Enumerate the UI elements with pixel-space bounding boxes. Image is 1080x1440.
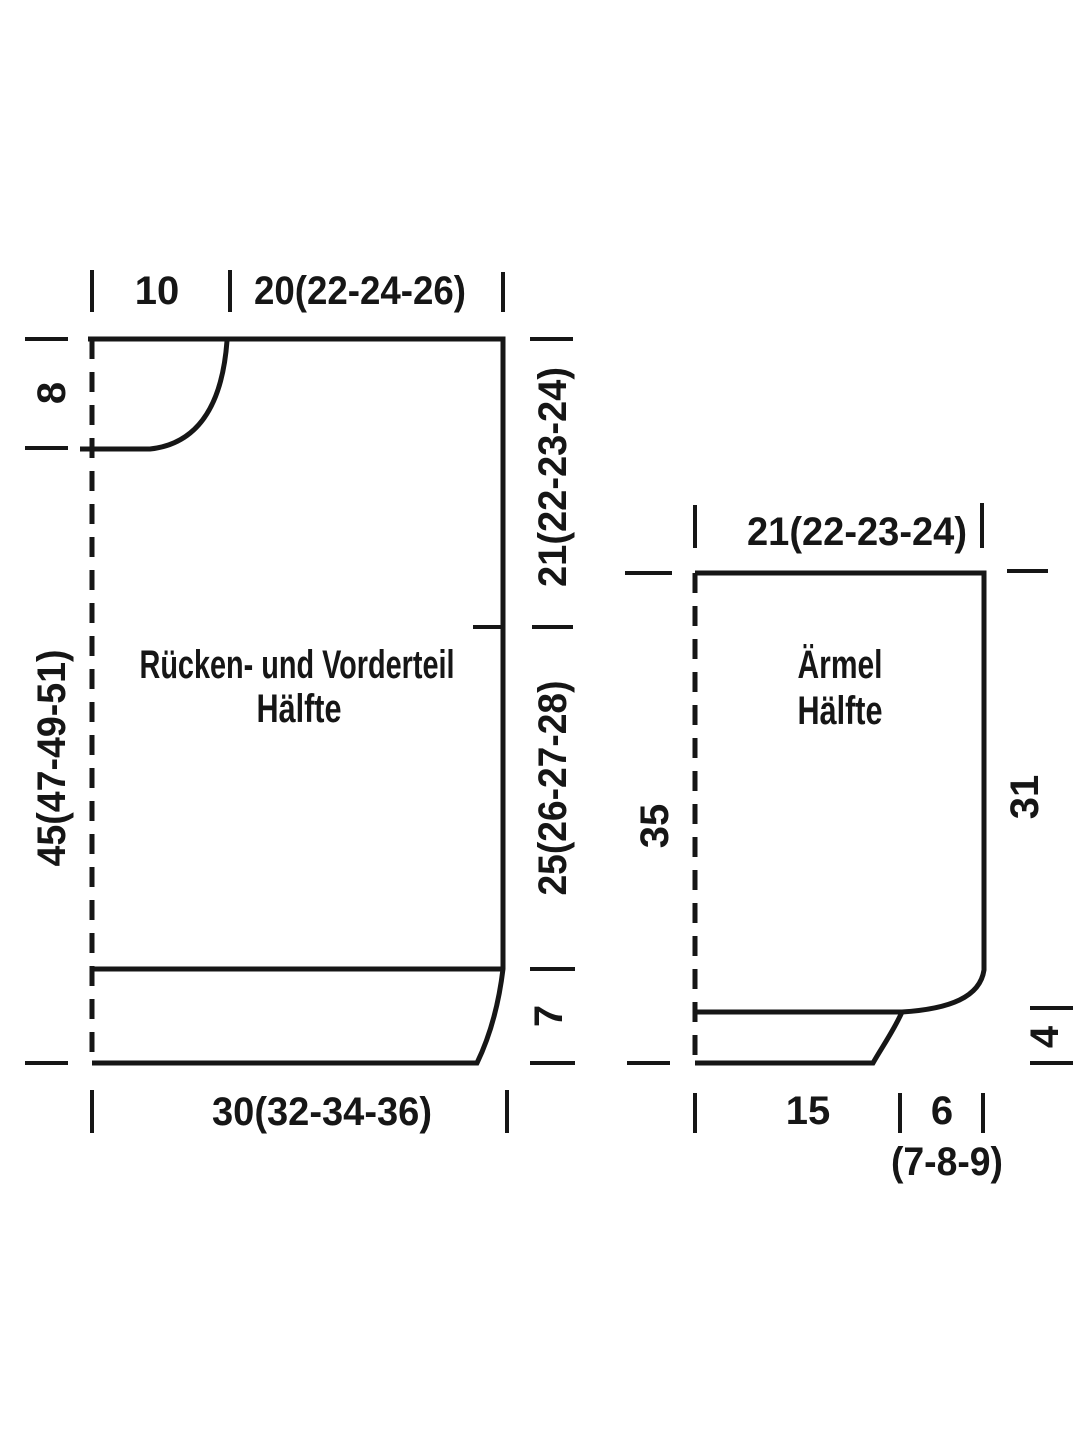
body-side-length-label: 25(26-27-28) (531, 681, 575, 896)
knitting-pattern-schematic: 10 20(22-24-26) 8 45(47-49-51) 21(22-23-… (0, 0, 1080, 1440)
body-neck-depth-label: 8 (30, 382, 74, 404)
sleeve-seam-length-label: 31 (1003, 775, 1047, 820)
body-shoulder-width-label: 10 (135, 269, 180, 313)
body-neck-width-label: 20(22-24-26) (254, 269, 466, 313)
sleeve-piece: 21(22-23-24) 35 31 4 15 6 (7-8-9) Ärmel … (625, 503, 1073, 1184)
body-ribbing-height-label: 7 (527, 1005, 571, 1027)
body-piece-title-line2: Hälfte (257, 687, 342, 731)
sleeve-total-length-label: 35 (633, 804, 677, 849)
body-piece-title-line1: Rücken- und Vorderteil (140, 643, 455, 687)
sleeve-top-width-label: 21(22-23-24) (747, 510, 967, 554)
body-armhole-length-label: 21(22-23-24) (531, 367, 575, 587)
body-piece: 10 20(22-24-26) 8 45(47-49-51) 21(22-23-… (25, 269, 575, 1134)
body-neckline-curve (80, 341, 227, 449)
sleeve-outline (695, 573, 984, 1012)
sleeve-cuff-height-label: 4 (1023, 1025, 1067, 1048)
sleeve-cuff-outline (695, 1012, 902, 1063)
sleeve-cuff-extension-label: 6 (931, 1089, 953, 1133)
body-total-length-label: 45(47-49-51) (30, 650, 74, 867)
sleeve-piece-title-line2: Hälfte (798, 689, 883, 733)
body-hem-width-label: 30(32-34-36) (212, 1090, 432, 1134)
sleeve-piece-title-line1: Ärmel (798, 643, 883, 687)
sleeve-cuff-width-label: 15 (786, 1089, 831, 1133)
sleeve-cuff-extension-sizes-label: (7-8-9) (891, 1140, 1003, 1184)
